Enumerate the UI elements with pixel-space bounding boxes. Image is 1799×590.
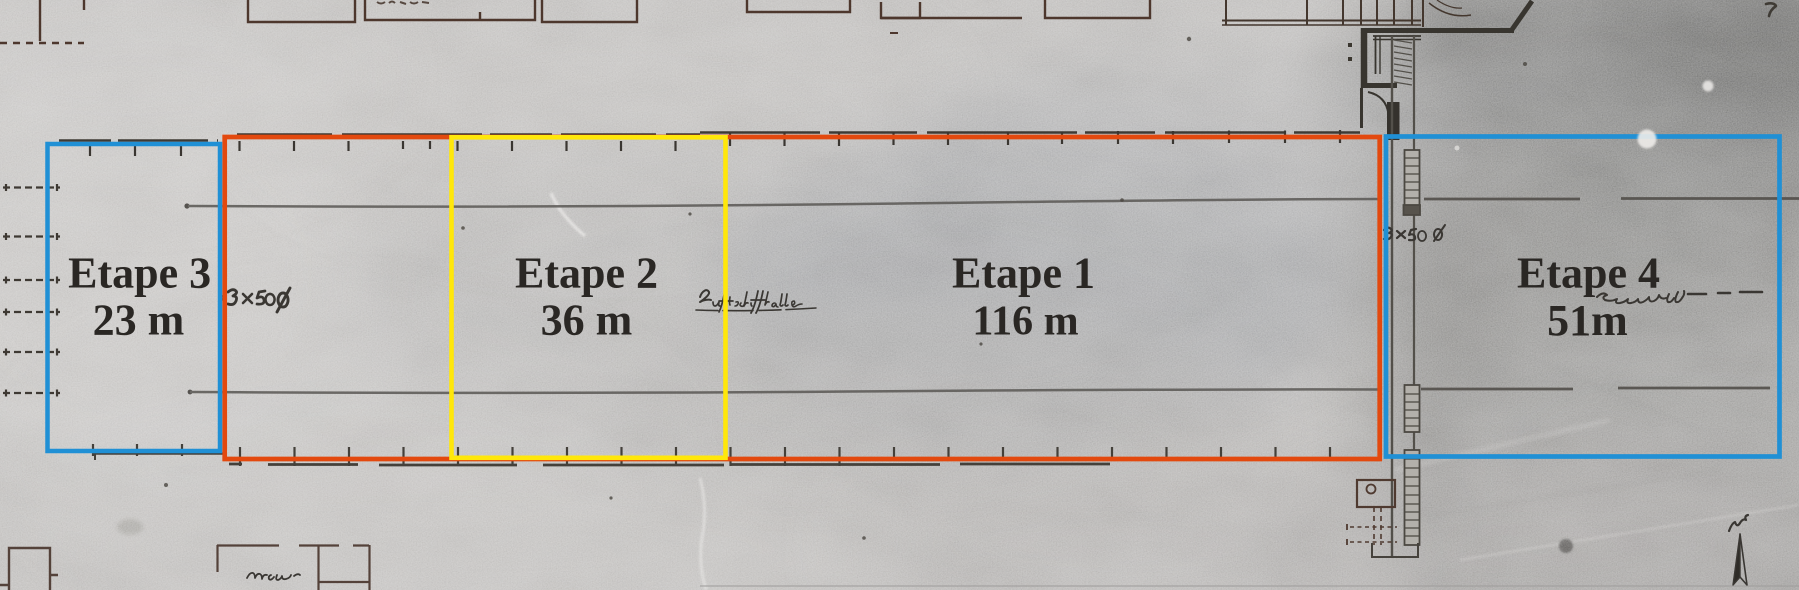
svg-text:23 m: 23 m xyxy=(93,296,185,345)
svg-text:116 m: 116 m xyxy=(972,299,1078,345)
svg-text:Etape 4: Etape 4 xyxy=(1517,249,1660,298)
svg-text:Etape 1: Etape 1 xyxy=(952,249,1095,298)
svg-text:36 m: 36 m xyxy=(541,296,633,345)
svg-text:51m: 51m xyxy=(1547,296,1628,345)
svg-text:Etape 2: Etape 2 xyxy=(515,249,658,298)
svg-text:Etape 3: Etape 3 xyxy=(68,249,211,298)
